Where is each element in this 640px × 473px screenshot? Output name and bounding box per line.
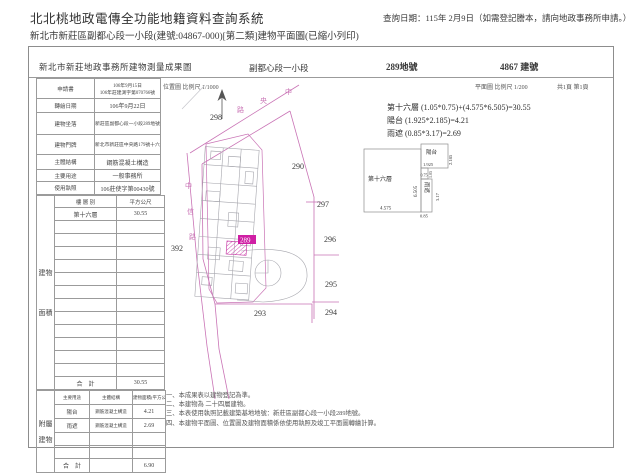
floor-name: 第十六層 [55, 208, 117, 221]
detail-labels: 第十六層 4.575 6.505 陽台 1.925 2.185 0.75 1.0… [368, 148, 453, 219]
footnote-1: 一、本成果表以建物登記為準。 [166, 391, 380, 400]
info-label: 轉繪日期 [37, 99, 95, 113]
parcel-label: 297 [317, 200, 329, 209]
road-name-char: 央 [260, 96, 267, 105]
info-value: 鋼筋混凝土構造 [95, 155, 161, 170]
road-edge-faint [182, 85, 205, 109]
annex-structure: 鋼筋混凝土構造 [90, 405, 133, 419]
formula-balcony: 陽台 (1.925*2.185)=4.21 [387, 114, 531, 127]
table-row [37, 351, 165, 364]
info-value: 106年9月15日 106年莊建測字第070766號 [95, 79, 161, 99]
page-indicator: 共1頁 第1頁 [557, 82, 589, 91]
footnotes: 一、本成果表以建物登記為準。 二、本建物為 二十四層建物。 三、本表使用執照記載… [166, 391, 380, 428]
annex-use: 雨遮 [55, 419, 90, 433]
document-subtitle: 新北市新莊區副都心段一小段(建號:04867-000)[第二類]建物平面圖(已縮… [30, 28, 359, 42]
table-row [37, 325, 165, 338]
app-title: 北北桃地政電傳全功能地籍資料查詢系統 [30, 8, 264, 27]
unit-detail-diagram: 第十六層 4.575 6.505 陽台 1.925 2.185 0.75 1.0… [357, 139, 457, 224]
table-row: 附屬建物 主要用途 主體結構 建物面積(平方公尺) [37, 391, 166, 405]
info-table: 申請書 106年9月15日 106年莊建測字第070766號 轉繪日期 106年… [36, 78, 161, 195]
info-label: 建物坐落 [37, 113, 95, 135]
table-row: 建物坐落 新莊區副都心段一小段289地號 [37, 113, 161, 135]
parcel-labels: 298 290 297 296 295 294 293 392 [171, 113, 337, 318]
info-value: 106年9月22日 [95, 99, 161, 113]
table-row [37, 433, 166, 446]
table-row: 建物面積 樓 層 別 平方公尺 [37, 196, 165, 208]
survey-sheet: 新北市新莊地政事務所建物測量成果圖 副都心段一小段 289地號 4867 建號 … [28, 46, 614, 448]
table-row: 雨遮 鋼筋混凝土構造 2.69 [37, 419, 166, 433]
dim-notch-width: 1.05 [428, 171, 433, 178]
table-row [37, 221, 165, 234]
floor-total-label: 合 計 [55, 377, 117, 390]
annex-total-label: 合 計 [55, 459, 90, 473]
building-footprint [195, 147, 259, 300]
info-label: 主體結構 [37, 155, 95, 170]
table-row [37, 312, 165, 325]
dim-notch-height: 0.75 [421, 173, 428, 178]
left-tables: 申請書 106年9月15日 106年莊建測字第070766號 轉繪日期 106年… [36, 78, 161, 473]
table-row: 合 計 30.55 [37, 377, 165, 390]
floor-plan-scale: 平面圖 比例尺 1/200 [475, 82, 528, 91]
table-row [37, 273, 165, 286]
parcel-label: 294 [325, 308, 337, 317]
column-header-floor: 樓 層 別 [55, 196, 117, 208]
annex-area-value: 2.69 [133, 419, 166, 433]
table-row [37, 286, 165, 299]
application-doc-no: 106年莊建測字第070766號 [95, 89, 160, 96]
info-value: 新北市新莊區中央路179號十六樓之7 [95, 135, 161, 155]
floor-area-table: 建物面積 樓 層 別 平方公尺 第十六層 30.55 合 計 30.55 [36, 195, 165, 390]
area-formulas: 第十六層 (1.05*0.75)+(4.575*6.505)=30.55 陽台 … [387, 101, 531, 140]
floor-area-value: 30.55 [117, 208, 165, 221]
footnote-2: 二、本建物為 二十四層建物。 [166, 400, 380, 409]
building-number: 4867 建號 [500, 60, 538, 73]
column-header-area: 平方公尺 [117, 196, 165, 208]
table-row [37, 446, 166, 459]
detail-floor-label: 第十六層 [368, 175, 392, 183]
info-value: 106莊使字第00430號 [95, 182, 161, 195]
table-row: 陽台 鋼筋混凝土構造 4.21 [37, 405, 166, 419]
parcel-label: 392 [171, 244, 183, 253]
info-label: 申請書 [37, 79, 95, 99]
table-row: 主要用途 一般事務所 [37, 170, 161, 182]
dim-balcony-height: 2.185 [448, 154, 453, 165]
footnote-3: 三、本表使用執照記載建築基地地號：新莊區副都心段一小段289地號。 [166, 409, 380, 418]
annex-total-value: 6.90 [133, 459, 166, 473]
page: { "header": { "app_title": "北北桃地政電傳全功能地籍… [0, 0, 640, 452]
table-row [37, 247, 165, 260]
info-label: 使用執照 [37, 182, 95, 195]
road-name-char: 路 [189, 232, 196, 241]
table-row: 第十六層 30.55 [37, 208, 165, 221]
road-name-char: 中 [185, 181, 192, 190]
application-date: 106年9月15日 [95, 82, 160, 89]
detail-canopy-label: 雨遮 [423, 182, 431, 194]
site-plan-map: 289 298 290 297 296 295 294 293 392 中 央 … [159, 77, 396, 407]
parcel-label: 293 [254, 309, 266, 318]
dim-balcony-width: 1.925 [423, 162, 434, 167]
land-number: 289地號 [386, 60, 418, 73]
table-row: 申請書 106年9月15日 106年莊建測字第070766號 [37, 79, 161, 99]
dim-canopy-height: 3.17 [435, 192, 440, 201]
sheet-title: 新北市新莊地政事務所建物測量成果圖 [39, 61, 192, 73]
dim-main-width: 4.575 [380, 207, 392, 212]
annex-table: 附屬建物 主要用途 主體結構 建物面積(平方公尺) 陽台 鋼筋混凝土構造 4.2… [36, 390, 166, 473]
table-row: 轉繪日期 106年9月22日 [37, 99, 161, 113]
annex-structure: 鋼筋混凝土構造 [90, 419, 133, 433]
table-row: 建物門牌 新北市新莊區中央路179號十六樓之7 [37, 135, 161, 155]
column-header-use: 主要用途 [55, 391, 90, 405]
info-label: 建物門牌 [37, 135, 95, 155]
table-row: 使用執照 106莊使字第00430號 [37, 182, 161, 195]
table-row [37, 299, 165, 312]
dim-main-height: 6.505 [414, 185, 419, 197]
parcel-label: 295 [325, 280, 337, 289]
road-name-char: 信 [187, 207, 194, 216]
dim-canopy-width: 0.85 [420, 214, 429, 219]
road-name-char: 路 [237, 105, 244, 114]
table-row [37, 260, 165, 273]
query-date-label: 查詢日期：115年 2月9日（如需登記謄本，請向地政事務所申請。） [383, 12, 631, 24]
footnote-4: 四、本建物平面圖、位置圖及建物面積係依使用執照及竣工平面圖轉繪計算。 [166, 419, 380, 428]
info-label: 主要用途 [37, 170, 95, 182]
annex-table-side-label: 附屬建物 [37, 391, 55, 473]
annex-use: 陽台 [55, 405, 90, 419]
road-name-char: 中 [285, 87, 292, 96]
table-row: 合 計 6.90 [37, 459, 166, 473]
column-header-structure: 主體結構 [90, 391, 133, 405]
floor-table-side-label: 建物面積 [37, 196, 55, 390]
info-value: 一般事務所 [95, 170, 161, 182]
info-value: 新莊區副都心段一小段289地號 [95, 113, 161, 135]
table-row [37, 234, 165, 247]
floor-total-value: 30.55 [117, 377, 165, 390]
table-row [37, 364, 165, 377]
formula-floor: 第十六層 (1.05*0.75)+(4.575*6.505)=30.55 [387, 101, 531, 114]
sheet-section-name: 副都心段一小段 [249, 62, 309, 74]
table-row [37, 338, 165, 351]
detail-balcony-label: 陽台 [426, 148, 438, 156]
table-row: 主體結構 鋼筋混凝土構造 [37, 155, 161, 170]
parcel-boundary [202, 111, 339, 323]
parcel-label: 298 [210, 113, 222, 122]
subject-parcel-number: 289 [240, 237, 251, 245]
parcel-label: 296 [324, 235, 336, 244]
parcel-label: 290 [292, 162, 304, 171]
